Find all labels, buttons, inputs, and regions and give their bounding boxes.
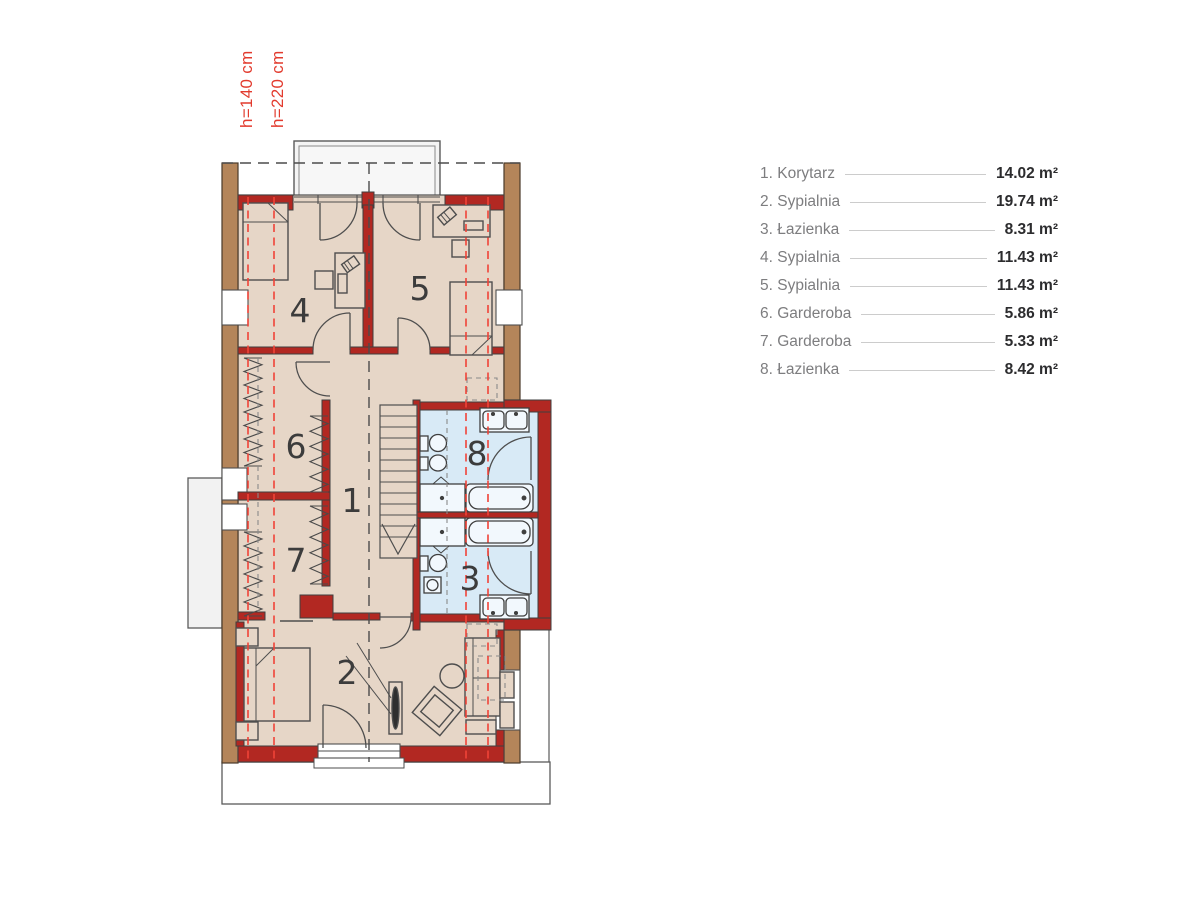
balcony-top-inner — [299, 146, 435, 197]
legend-room-area: 8.42 m² — [1005, 361, 1058, 379]
legend-room-label: 6. Garderoba — [760, 305, 851, 323]
legend-room-label: 4. Sypialnia — [760, 249, 840, 267]
niche-window — [222, 504, 247, 530]
legend-room-area: 8.31 m² — [1005, 221, 1058, 239]
legend-leader-line — [849, 230, 994, 231]
wall-bottom — [238, 746, 320, 762]
legend-room-area: 14.02 m² — [996, 165, 1058, 183]
legend-room-area: 5.86 m² — [1005, 305, 1058, 323]
legend-row: 8. Łazienka 8.42 m² — [760, 356, 1058, 384]
legend-room-area: 11.43 m² — [997, 277, 1058, 295]
bathtub — [466, 484, 533, 512]
round-table — [440, 664, 464, 688]
wall — [333, 613, 380, 620]
legend-row: 1. Korytarz 14.02 m² — [760, 160, 1058, 188]
legend-room-label: 5. Sypialnia — [760, 277, 840, 295]
niche-window — [496, 290, 522, 325]
niche-window — [222, 290, 248, 325]
wall-corridor-wardrobe — [322, 400, 330, 492]
legend-room-label: 2. Sypialnia — [760, 193, 840, 211]
legend-leader-line — [849, 370, 994, 371]
legend-leader-line — [861, 342, 994, 343]
legend-leader-line — [861, 314, 994, 315]
desk-room5 — [433, 205, 490, 237]
legend-leader-line — [850, 202, 986, 203]
room-label-6: 6 — [286, 427, 307, 466]
legend-leader-line — [850, 286, 987, 287]
room-label-3: 3 — [460, 559, 481, 598]
nightstand — [236, 628, 258, 646]
room-label-4: 4 — [290, 291, 311, 330]
room-label-2: 2 — [337, 653, 358, 692]
bottom-window — [314, 744, 404, 768]
toilet — [420, 555, 447, 572]
bathtub — [466, 518, 533, 546]
nightstand — [236, 722, 258, 740]
legend-row: 7. Garderoba 5.33 m² — [760, 328, 1058, 356]
legend-row: 4. Sypialnia 11.43 m² — [760, 244, 1058, 272]
staircase — [380, 405, 417, 558]
bidet — [420, 455, 447, 471]
legend-room-label: 1. Korytarz — [760, 165, 835, 183]
room-label-5: 5 — [410, 269, 431, 308]
legend-row: 5. Sypialnia 11.43 m² — [760, 272, 1058, 300]
legend-room-label: 7. Garderoba — [760, 333, 851, 351]
legend-leader-line — [845, 174, 986, 175]
bed-room2 — [244, 648, 310, 721]
room-legend: 1. Korytarz 14.02 m² 2. Sypialnia 19.74 … — [760, 160, 1058, 384]
legend-row: 3. Łazienka 8.31 m² — [760, 216, 1058, 244]
legend-leader-line — [850, 258, 987, 259]
legend-room-label: 8. Łazienka — [760, 361, 839, 379]
wall — [350, 347, 398, 354]
chimney-block — [300, 595, 333, 618]
legend-room-area: 19.74 m² — [996, 193, 1058, 211]
legend-room-area: 5.33 m² — [1005, 333, 1058, 351]
wall-room2-right — [496, 730, 504, 746]
wall-rooms-8-3 — [413, 512, 551, 518]
floor-plan: 4 5 6 1 7 8 3 2 — [0, 0, 1200, 900]
wall-bath-right — [538, 412, 551, 618]
height-annotation-220: h=220 cm — [268, 32, 288, 128]
wall — [238, 347, 313, 354]
legend-row: 6. Garderoba 5.86 m² — [760, 300, 1058, 328]
room-label-8: 8 — [467, 434, 488, 473]
room-label-1: 1 — [342, 481, 363, 520]
legend-room-area: 11.43 m² — [997, 249, 1058, 267]
washbasin-small — [424, 577, 441, 593]
page: 4 5 6 1 7 8 3 2 h=140 cm h=220 cm 1. Kor… — [0, 0, 1200, 900]
legend-row: 2. Sypialnia 19.74 m² — [760, 188, 1058, 216]
right-knee-wall-upper — [504, 163, 520, 400]
wall-rooms-6-7 — [238, 492, 330, 500]
desk-room4 — [335, 253, 365, 308]
bed-room5 — [450, 282, 492, 355]
height-annotation-140: h=140 cm — [237, 32, 257, 128]
room-label-7: 7 — [286, 541, 307, 580]
side-dormer — [188, 478, 222, 628]
wall-bath-bottom-outer — [504, 618, 551, 630]
toilet — [420, 435, 447, 452]
legend-room-label: 3. Łazienka — [760, 221, 839, 239]
window-sill — [314, 758, 404, 768]
stool-room4 — [315, 271, 333, 289]
bed-room4 — [243, 203, 288, 280]
